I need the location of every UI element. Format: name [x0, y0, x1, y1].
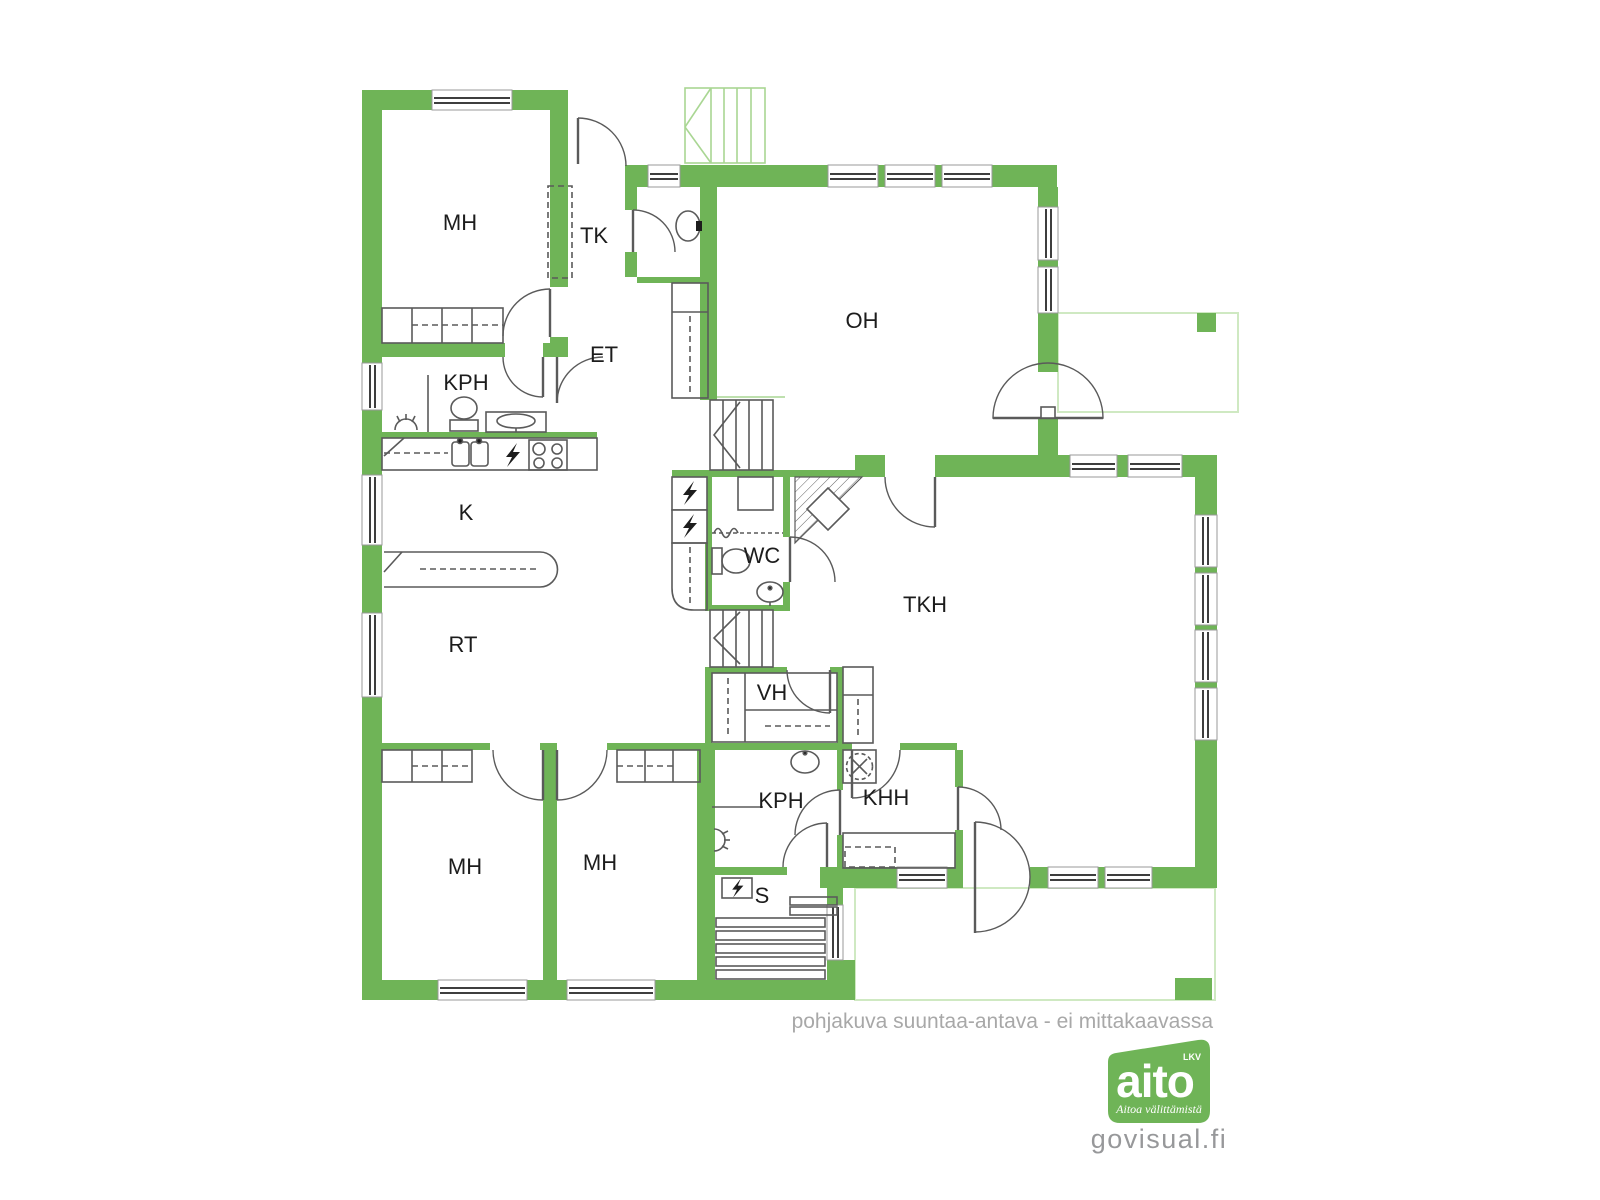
- room-label-oh: OH: [846, 308, 879, 333]
- room-label-et: ET: [590, 342, 618, 367]
- door-arc: [790, 537, 835, 582]
- window: [1195, 515, 1217, 567]
- door-arc: [503, 357, 543, 397]
- door-arc: [783, 823, 827, 867]
- room-label-khh: KHH: [863, 785, 909, 810]
- door-arc: [578, 118, 626, 166]
- door-arc: [557, 750, 607, 800]
- fireplace-icon: [795, 477, 862, 543]
- room-label-mh-left: MH: [448, 854, 482, 879]
- door-arc-exterior: [975, 822, 1030, 933]
- khh-counter: [843, 833, 955, 868]
- wardrobe: [617, 750, 700, 782]
- window: [1195, 688, 1217, 740]
- electrical-panel-icons: [672, 477, 707, 610]
- terrace-bottom-right: [855, 888, 1215, 1000]
- door-arc: [885, 477, 935, 527]
- window: [362, 475, 382, 545]
- door-arc: [493, 750, 543, 800]
- window: [1195, 573, 1217, 625]
- room-label-tk: TK: [580, 223, 608, 248]
- aito-logo-suffix: LKV: [1183, 1052, 1201, 1062]
- shower-icon: [714, 829, 730, 851]
- room-label-mh-top: MH: [443, 210, 477, 235]
- aito-logo-tagline: Aitoa välittämistä: [1115, 1102, 1202, 1116]
- window: [827, 905, 843, 960]
- wardrobe: [382, 308, 503, 343]
- window: [885, 165, 935, 187]
- exterior-stairs-icon: [685, 88, 765, 163]
- staircase-upper: [710, 400, 773, 470]
- floor-plan-drawing: MH TK OH KPH ET K WC TKH RT VH KPH KHH S…: [0, 0, 1600, 1200]
- room-label-mh-mid: MH: [583, 850, 617, 875]
- room-label-wc: WC: [744, 543, 781, 568]
- window: [648, 165, 680, 187]
- disclaimer-text: pohjakuva suuntaa-antava - ei mittakaava…: [792, 1010, 1214, 1033]
- window: [1038, 267, 1058, 313]
- room-label-kph-bottom: KPH: [758, 788, 803, 813]
- sink-icon: [676, 211, 702, 241]
- aito-logo-text: aito: [1116, 1055, 1194, 1107]
- door-arc: [633, 210, 675, 252]
- washing-machine-icon: [843, 750, 876, 783]
- window: [828, 165, 878, 187]
- shower-icon: [395, 414, 417, 430]
- sauna-stove-icon: [722, 878, 752, 898]
- window: [567, 980, 655, 1000]
- window: [1038, 207, 1058, 260]
- sink-icon: [791, 751, 819, 773]
- govisual-text: govisual.fi: [1091, 1124, 1228, 1154]
- room-label-vh: VH: [757, 680, 788, 705]
- room-label-kph-top: KPH: [443, 370, 488, 395]
- sauna-benches: [716, 897, 837, 979]
- floor-plan-page: MH TK OH KPH ET K WC TKH RT VH KPH KHH S…: [0, 0, 1600, 1200]
- wardrobe: [382, 750, 472, 782]
- room-label-k: K: [459, 500, 474, 525]
- window: [1048, 867, 1098, 888]
- window: [362, 613, 382, 697]
- door-arc: [503, 289, 550, 337]
- terrace-post: [1175, 978, 1212, 1000]
- kitchen-counter: [382, 438, 597, 470]
- window: [1128, 455, 1182, 477]
- room-label-rt: RT: [449, 632, 478, 657]
- door-arc: [958, 787, 1001, 830]
- room-labels: MH TK OH KPH ET K WC TKH RT VH KPH KHH S…: [443, 210, 947, 908]
- window: [942, 165, 992, 187]
- window: [1070, 455, 1117, 477]
- window: [438, 980, 527, 1000]
- room-label-s: S: [755, 883, 770, 908]
- window: [1105, 867, 1152, 888]
- window: [1195, 630, 1217, 682]
- room-label-tkh: TKH: [903, 592, 947, 617]
- cabinet: [843, 667, 873, 743]
- window: [362, 363, 382, 410]
- window: [897, 867, 947, 888]
- sink-icon: [757, 582, 783, 606]
- door-arc: [787, 670, 830, 713]
- dishwasher-bolt-icon: [506, 443, 520, 467]
- kitchen-island: [384, 552, 558, 587]
- window: [432, 90, 512, 110]
- sink-icon: [486, 412, 546, 432]
- terrace-post: [1197, 313, 1216, 332]
- toilet-icon: [450, 397, 478, 431]
- wc-fixtures: [712, 477, 783, 606]
- stove-icon: [529, 440, 567, 470]
- aito-logo: aito LKV Aitoa välittämistä: [1108, 1040, 1210, 1123]
- kitchen-sink-icon: [452, 439, 488, 467]
- staircase-lower: [710, 610, 773, 667]
